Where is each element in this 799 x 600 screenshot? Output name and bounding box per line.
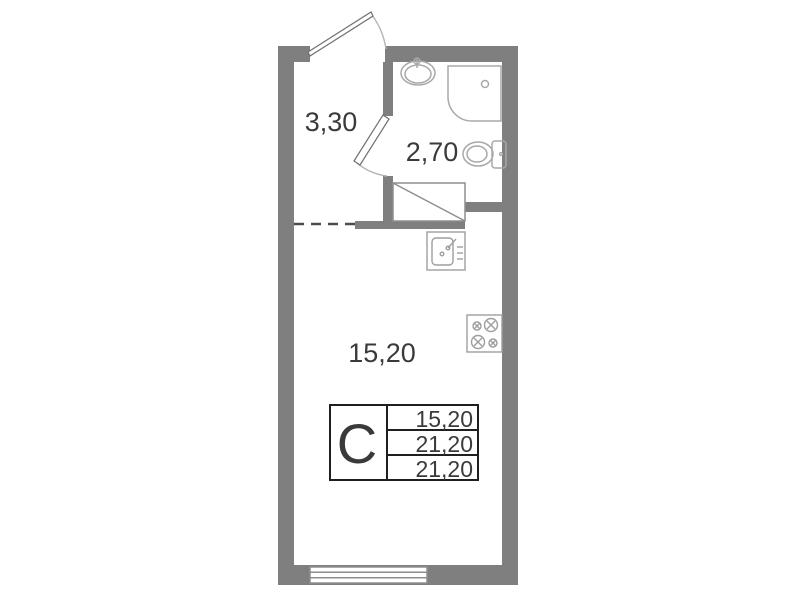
cooktop-body xyxy=(467,315,502,352)
shower-drain xyxy=(482,81,489,88)
window-frame xyxy=(310,567,427,583)
cooktop-icon xyxy=(467,315,502,352)
shower-tray-icon xyxy=(448,66,501,121)
hallway-area-label: 3,30 xyxy=(305,107,358,137)
kitchen-fixtures xyxy=(427,232,502,352)
bathroom-door-icon xyxy=(354,115,389,176)
legend-unit-type: С xyxy=(337,412,377,475)
entrance-door-leaf xyxy=(308,12,373,56)
floor-plan-canvas: 3,30 2,70 15,20 С 15,20 21,20 21,20 xyxy=(0,0,799,600)
kitchen-sink-icon xyxy=(427,232,465,270)
living-room-area-label: 15,20 xyxy=(348,338,416,368)
bathroom-divider-wall-upper xyxy=(383,62,393,116)
washbasin-inner xyxy=(405,65,431,83)
toilet-tank-button xyxy=(500,153,503,156)
window-icon xyxy=(310,567,427,583)
bathroom-door-leaf xyxy=(354,115,389,165)
floor-plan-drawing: 3,30 2,70 15,20 С 15,20 21,20 21,20 xyxy=(0,0,799,600)
shower-tray-outline xyxy=(448,66,501,121)
right-wall xyxy=(502,46,518,585)
legend-row-value: 15,20 xyxy=(415,406,473,432)
legend-table: С 15,20 21,20 21,20 xyxy=(330,405,478,482)
bathroom-bottom-wall xyxy=(465,202,502,212)
bathroom-door-swing-arc xyxy=(357,163,387,176)
toilet-bowl-inner xyxy=(467,146,487,162)
left-wall xyxy=(278,46,294,585)
bathroom-area-label: 2,70 xyxy=(406,137,459,167)
washbasin-icon xyxy=(401,58,435,85)
top-wall-entrance-stub xyxy=(278,46,310,62)
toilet-icon xyxy=(463,141,506,168)
top-wall xyxy=(385,46,518,62)
legend-row-value: 21,20 xyxy=(415,456,473,482)
duct-bottom-wall xyxy=(355,221,465,229)
kitchen-sink-basin xyxy=(432,238,453,265)
entrance-door-icon xyxy=(308,12,386,56)
entrance-door-swing-arc xyxy=(372,15,386,49)
legend-row-value: 21,20 xyxy=(415,431,473,457)
kitchen-sink-drain xyxy=(440,252,444,256)
duct-shaft-icon xyxy=(393,183,465,221)
